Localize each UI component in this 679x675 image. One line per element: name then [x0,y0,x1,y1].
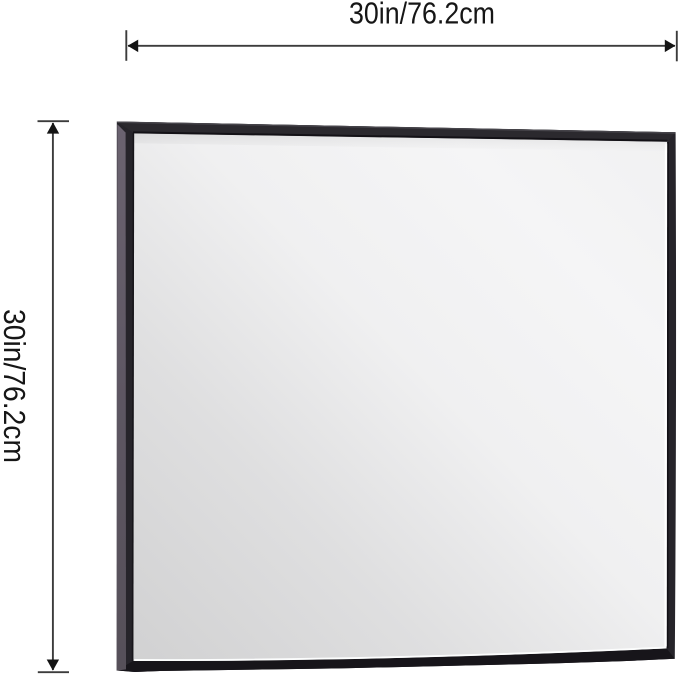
svg-text:30in/76.2cm: 30in/76.2cm [0,309,31,463]
svg-text:30in/76.2cm: 30in/76.2cm [349,0,495,31]
